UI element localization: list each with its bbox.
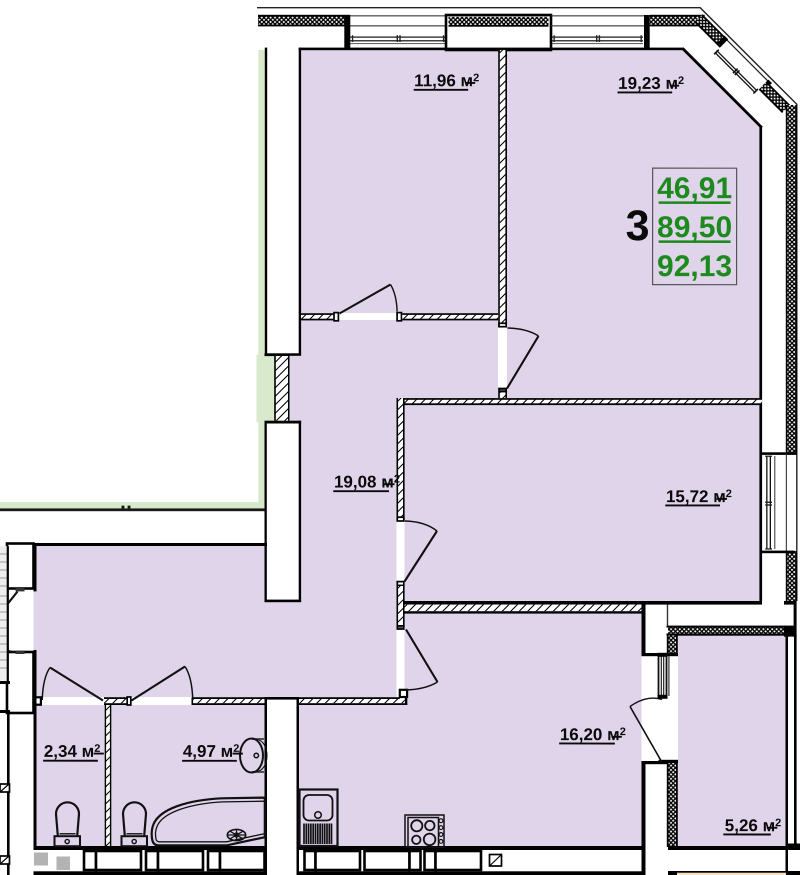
- svg-text:92,13: 92,13: [657, 250, 732, 283]
- svg-text:2,34 м2: 2,34 м2: [44, 742, 101, 761]
- svg-text:19,08 м2: 19,08 м2: [334, 472, 400, 491]
- svg-text:46,91: 46,91: [657, 172, 732, 205]
- svg-text:4,97 м2: 4,97 м2: [183, 742, 240, 761]
- svg-text:89,50: 89,50: [657, 211, 732, 244]
- svg-text:5,26 м2: 5,26 м2: [725, 816, 782, 835]
- svg-text:11,96 м2: 11,96 м2: [414, 71, 479, 90]
- svg-text:15,72 м2: 15,72 м2: [666, 487, 732, 506]
- svg-text:19,23 м2: 19,23 м2: [618, 74, 684, 93]
- svg-text:16,20 м2: 16,20 м2: [560, 725, 626, 744]
- svg-text:3: 3: [626, 202, 650, 250]
